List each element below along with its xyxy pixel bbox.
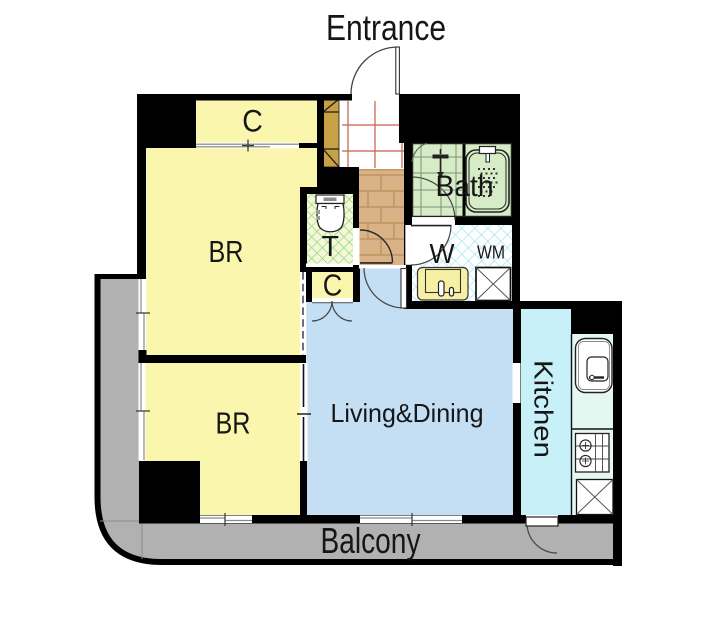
svg-text:BR: BR	[216, 406, 251, 441]
svg-text:T: T	[322, 231, 340, 263]
svg-text:Balcony: Balcony	[321, 520, 421, 561]
svg-text:WM: WM	[477, 241, 505, 262]
svg-text:C: C	[323, 268, 343, 303]
svg-text:Bath: Bath	[436, 170, 494, 203]
svg-text:Kitchen: Kitchen	[529, 360, 559, 458]
svg-text:Entrance: Entrance	[326, 7, 446, 48]
svg-text:BR: BR	[209, 234, 244, 269]
svg-text:Living&Dining: Living&Dining	[331, 398, 484, 428]
svg-text:C: C	[242, 103, 263, 139]
svg-text:W: W	[430, 238, 456, 269]
